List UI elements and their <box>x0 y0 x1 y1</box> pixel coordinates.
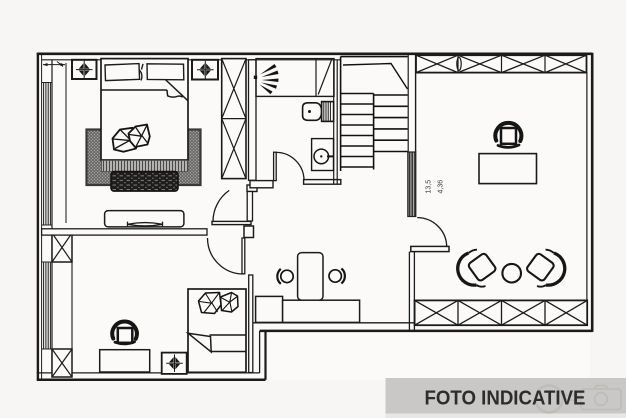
svg-text:13,5: 13,5 <box>426 180 433 194</box>
svg-text:4,36: 4,36 <box>438 180 445 194</box>
svg-text:FOTO INDICATIVE: FOTO INDICATIVE <box>425 387 586 410</box>
